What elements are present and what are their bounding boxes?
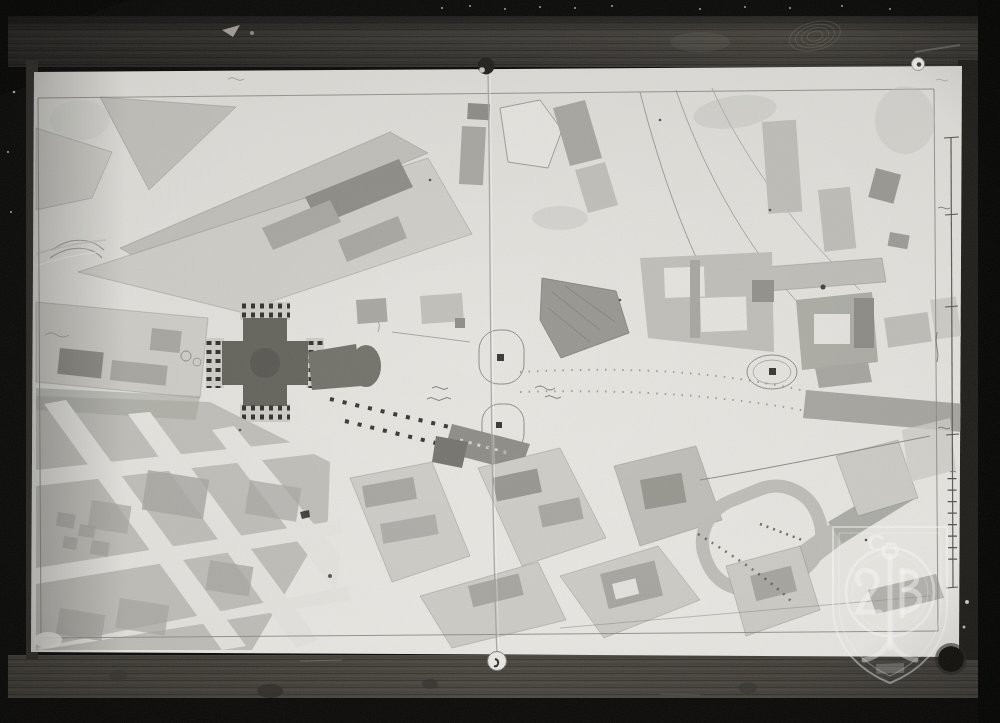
photograph [0,0,1000,723]
vignette [0,0,1000,723]
photo-of-city-plan [0,0,1000,723]
